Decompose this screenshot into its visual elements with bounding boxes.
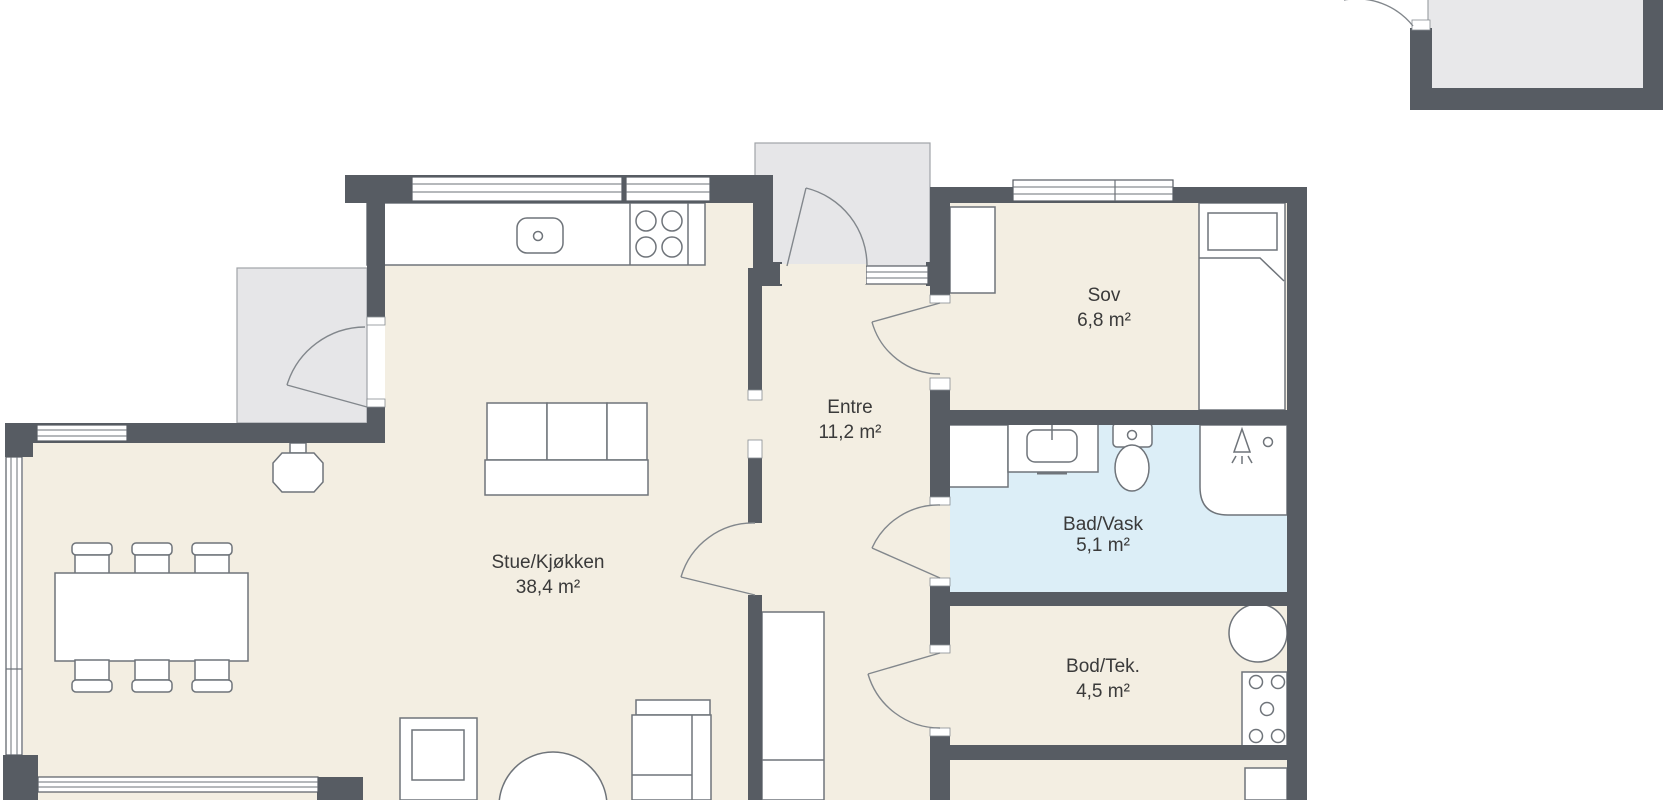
sofa-cushion [547, 403, 607, 460]
threshold [367, 399, 385, 407]
shower-control [1264, 438, 1273, 447]
threshold [930, 295, 950, 303]
armchair-cushion [412, 730, 464, 780]
label-bod-name: Bod/Tek. [1066, 656, 1140, 677]
window-sov [1013, 180, 1173, 201]
threshold [930, 578, 950, 586]
wood-stove [273, 453, 323, 492]
wall-west-corner [5, 423, 33, 457]
washing-machine [948, 425, 1008, 487]
burner [636, 211, 656, 231]
threshold [748, 390, 762, 400]
outbuilding-interior [1428, 0, 1647, 90]
armchair-right [632, 700, 711, 800]
wall-southwest-corner [3, 755, 38, 800]
chair-seat [135, 555, 169, 575]
terrace-west [237, 268, 367, 423]
wall-east [1287, 187, 1307, 800]
threshold [748, 440, 762, 458]
toilet-bowl [1115, 445, 1149, 491]
sofa-cushion [607, 403, 647, 460]
shower [1200, 425, 1287, 515]
sofa-cushion [487, 403, 547, 460]
wall-porch-west [753, 203, 773, 268]
chair-back [132, 543, 172, 555]
label-sov-area: 6,8 m² [1077, 310, 1131, 331]
wall-entry-left [753, 262, 782, 286]
sink-drain [534, 232, 543, 241]
floor-plan-svg: Stue/Kjøkken 38,4 m² Entre 11,2 m² Sov 6… [0, 0, 1670, 800]
armchair-left [400, 718, 477, 800]
dining-chairs-bottom [72, 660, 232, 692]
chair-back [72, 543, 112, 555]
dining-table [55, 573, 248, 661]
bed [1199, 203, 1285, 410]
threshold [1412, 20, 1430, 30]
burner [662, 237, 682, 257]
armchair-body [632, 715, 711, 800]
wall-bad-south [950, 592, 1287, 606]
panel-knob [1261, 703, 1274, 716]
threshold [930, 378, 950, 390]
window-kitchen-1 [412, 177, 622, 201]
chair-back [132, 680, 172, 692]
window-entry-sidelight [866, 266, 928, 284]
label-stue-name: Stue/Kjøkken [492, 552, 605, 573]
window-south-sliding [38, 777, 318, 792]
armchair-backrest [636, 700, 710, 715]
wall-sov-west-upper [930, 187, 950, 303]
toilet-button [1128, 431, 1137, 440]
label-entre-name: Entre [827, 397, 872, 418]
label-bad-area: 5,1 m² [1076, 535, 1130, 556]
window-west-wall [6, 457, 22, 755]
wall-bad-bod-west [930, 578, 950, 653]
wall-bod-west-lower [930, 728, 950, 800]
sov-closet [950, 207, 995, 293]
sofa-seat-front [485, 460, 648, 495]
wall-living-west-lower [367, 407, 385, 443]
threshold [367, 317, 385, 325]
burner [636, 237, 656, 257]
wall-entre-west-b [748, 458, 762, 523]
toilet [1113, 423, 1152, 491]
label-bod-area: 4,5 m² [1076, 681, 1130, 702]
bed-pillow [1208, 213, 1277, 250]
panel-knob [1250, 730, 1263, 743]
wall-outbuilding-east [1643, 0, 1663, 110]
wall-entre-west-a [748, 268, 762, 390]
panel-knob [1272, 676, 1285, 689]
water-heater [1229, 604, 1287, 662]
shower-tray [1200, 425, 1287, 515]
burner [662, 211, 682, 231]
chair-seat [195, 660, 229, 680]
entry-porch [755, 143, 930, 268]
chair-seat [135, 660, 169, 680]
outbuilding-door [1344, 0, 1413, 26]
chair-seat [195, 555, 229, 575]
label-entre-area: 11,2 m² [818, 422, 881, 443]
kitchen-fixtures [367, 203, 705, 265]
wall-south-piece [317, 777, 363, 800]
threshold [930, 728, 950, 736]
stove-flue [290, 443, 306, 453]
wall-bad-north [950, 410, 1287, 425]
fixture-below-bod [1245, 768, 1287, 800]
panel-knob [1272, 730, 1285, 743]
label-sov-name: Sov [1088, 285, 1121, 306]
label-stue-area: 38,4 m² [516, 577, 580, 598]
wall-entre-west-c [748, 595, 762, 800]
dining-set [55, 543, 248, 692]
floor-plan-canvas: Stue/Kjøkken 38,4 m² Entre 11,2 m² Sov 6… [0, 0, 1670, 800]
threshold [930, 645, 950, 653]
chair-seat [75, 660, 109, 680]
sofa [485, 403, 648, 495]
chair-back [192, 680, 232, 692]
threshold [930, 497, 950, 505]
label-bad-name: Bad/Vask [1063, 514, 1143, 535]
panel-knob [1250, 676, 1263, 689]
entre-wardrobe [762, 612, 824, 800]
window-kitchen-2 [626, 177, 710, 201]
chair-seat [75, 555, 109, 575]
wall-living-west-upper [367, 203, 385, 325]
wall-bod-south [950, 745, 1287, 760]
window-dining-north [37, 425, 127, 441]
wall-sov-bad-west [930, 390, 950, 505]
dining-chairs-top [72, 543, 232, 575]
chair-back [192, 543, 232, 555]
chair-back [72, 680, 112, 692]
wall-outbuilding-south [1410, 88, 1663, 110]
